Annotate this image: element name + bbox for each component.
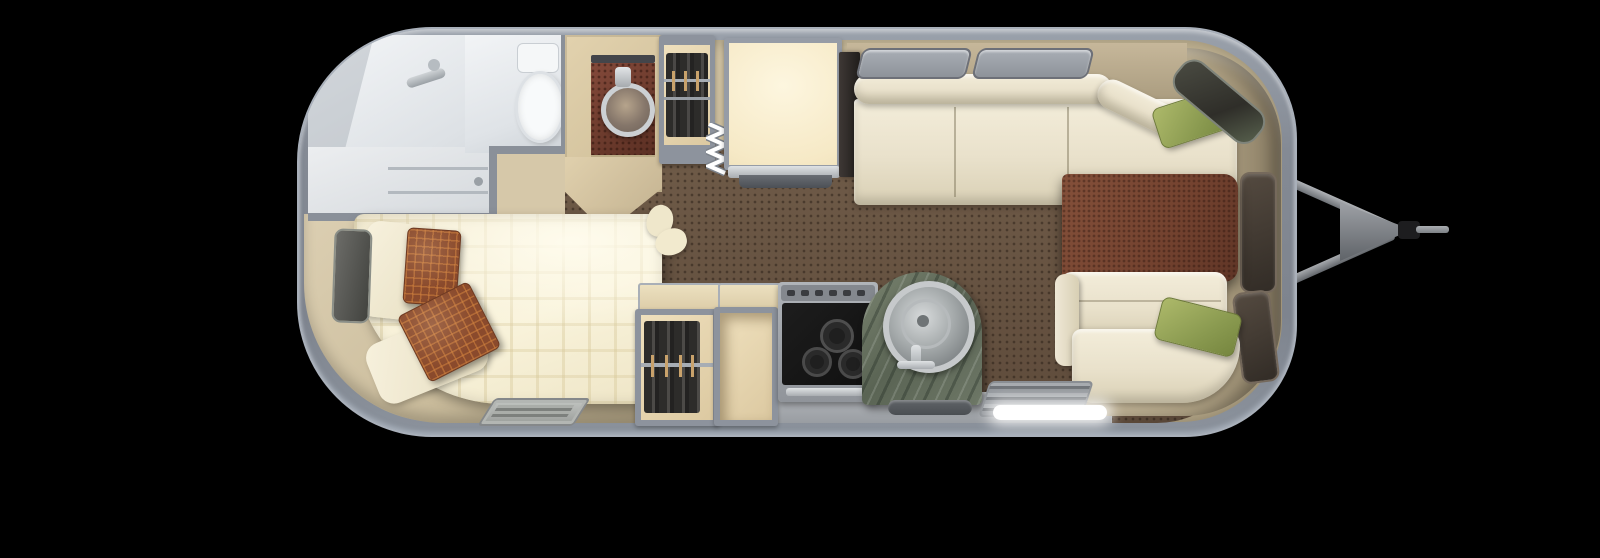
hitch-tongue-bar — [1416, 226, 1449, 233]
wardrobe-lower-interior — [641, 315, 713, 420]
wardrobe-upper-interior — [664, 45, 710, 145]
empty-cabinet — [714, 307, 778, 426]
shower-drain — [428, 59, 440, 71]
toilet-bowl — [515, 71, 565, 143]
vanity-sink — [601, 83, 655, 137]
kitchen-sink-drain — [917, 315, 929, 327]
vanity-cabinet — [565, 35, 662, 192]
vanity-shelf-dark — [591, 55, 655, 63]
entry-step-inner — [739, 175, 832, 188]
wardrobe-lower-hanger-1 — [651, 355, 654, 377]
kitchen-faucet-handle — [897, 361, 935, 369]
floorplan-stage — [0, 0, 1600, 558]
kitchen-sink-bowl — [883, 281, 975, 373]
stove-knob-5 — [843, 290, 851, 296]
window-bedroom-left — [331, 228, 372, 323]
coffee-table — [1062, 174, 1238, 282]
wardrobe-upper-rod-2 — [664, 97, 710, 100]
stove-burner-2 — [802, 347, 832, 377]
window-top-1 — [855, 48, 973, 79]
toilet-tank — [517, 43, 559, 73]
stove-burner-1 — [820, 319, 854, 353]
shower-lower — [308, 147, 497, 219]
stove-knob-3 — [815, 290, 823, 296]
shower-wall-shade — [308, 35, 428, 153]
shower-faucet — [405, 67, 446, 89]
stove-knob-6 — [857, 290, 865, 296]
wardrobe-upper-rod-1 — [664, 79, 710, 82]
wardrobe-lower-hanger-3 — [679, 355, 682, 377]
stove-cooktop — [782, 303, 874, 385]
wardrobe-upper-hanger-3 — [696, 71, 699, 91]
bath-foot-floor — [496, 150, 565, 217]
wardrobe-upper-clothes — [666, 53, 708, 137]
empty-cabinet-interior — [720, 313, 772, 420]
toilet-room — [465, 35, 561, 153]
sink-floor-mat — [888, 400, 972, 415]
trailer-shell — [297, 27, 1297, 437]
stove-knob-strip — [781, 285, 875, 301]
stove-handle — [786, 388, 870, 396]
wall-bath-step-h — [492, 146, 570, 154]
sofa-seam-1 — [954, 107, 956, 197]
bath-drawer-line-2 — [388, 191, 488, 194]
wardrobe-lower — [635, 309, 719, 426]
stove-knob-2 — [801, 290, 809, 296]
vanity-faucet — [615, 67, 631, 87]
stove-knob-4 — [829, 290, 837, 296]
wall-bath-step-v — [489, 146, 497, 220]
wardrobe-lower-hanger-2 — [665, 355, 668, 377]
wardrobe-upper-hanger-1 — [672, 71, 675, 91]
wardrobe-upper-hanger-2 — [684, 71, 687, 91]
floor-vent-bedroom — [477, 398, 590, 426]
entry-door — [724, 38, 842, 170]
floor-vent-slats — [491, 405, 574, 417]
stove-knob-1 — [787, 290, 795, 296]
window-top-2 — [971, 48, 1095, 79]
step-light — [993, 405, 1107, 420]
bath-drawer-line-1 — [388, 167, 488, 170]
bath-drawer-knob — [474, 177, 483, 186]
window-front-middle — [1240, 172, 1277, 293]
entry-door-panel — [729, 43, 837, 165]
wardrobe-lower-hanger-4 — [691, 355, 694, 377]
bench-backrest-seam — [1066, 300, 1221, 302]
